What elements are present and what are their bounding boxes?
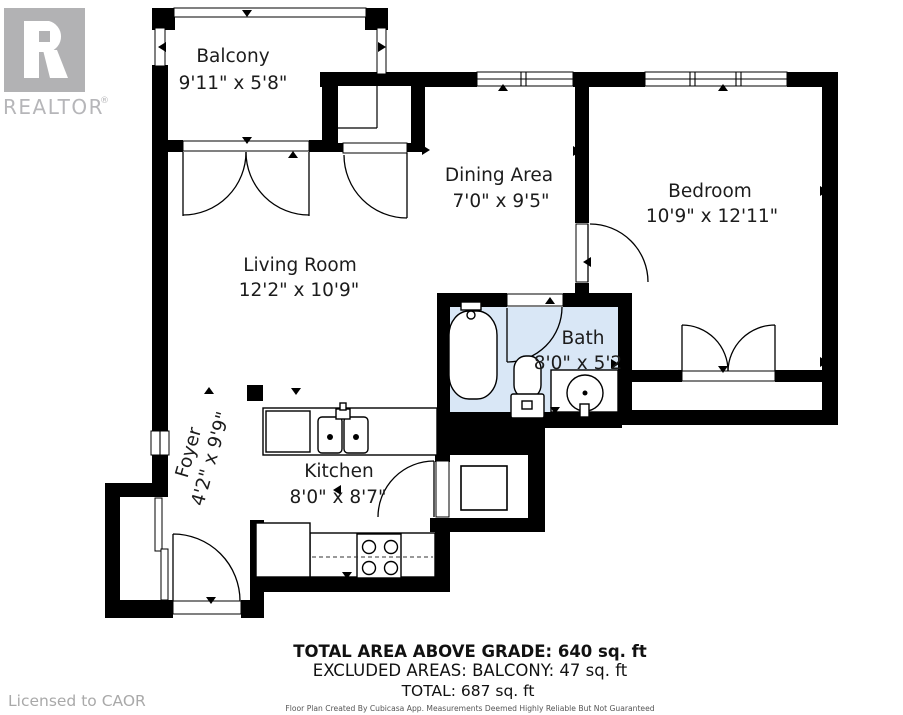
- registered-mark: ®: [100, 96, 109, 106]
- bedroom-window: [645, 72, 787, 86]
- dining-window: [477, 72, 573, 86]
- excluded-areas: EXCLUDED AREAS: BALCONY: 47 sq. ft: [313, 661, 628, 680]
- area-summary: TOTAL AREA ABOVE GRADE: 640 sq. ft EXCLU…: [285, 642, 654, 713]
- living-dims: 12'2" x 10'9": [239, 280, 360, 301]
- bathroom-sink: [551, 370, 618, 417]
- fridge: [256, 523, 310, 577]
- floorplan-svg: REALTOR ®: [0, 0, 903, 715]
- kitchen-counter-bottom: [256, 523, 435, 578]
- stove: [357, 534, 401, 578]
- floorplan-page: REALTOR ®: [0, 0, 903, 715]
- bedroom-closet-door-right: [728, 325, 775, 371]
- licensed-text: Licensed to CAOR: [8, 692, 146, 710]
- kitchen-name: Kitchen: [304, 461, 374, 482]
- balcony-french-door-right: [246, 152, 309, 216]
- balcony-railing: [155, 8, 386, 74]
- total-above-grade: TOTAL AREA ABOVE GRADE: 640 sq. ft: [293, 642, 647, 661]
- bathtub: [449, 302, 497, 399]
- utility-closet: [338, 86, 411, 143]
- foyer-sliding-doors: [155, 498, 168, 600]
- balcony-french-door-left: [183, 152, 246, 216]
- balcony-dims: 9'11" x 5'8": [179, 73, 288, 94]
- room-label-foyer: Foyer 4'2" x 9'9": [166, 403, 235, 508]
- bath-dims: 8'0" x 5'2: [534, 353, 622, 374]
- utility-closet-door: [344, 153, 407, 218]
- living-name: Living Room: [243, 255, 357, 276]
- room-label-dining: Dining Area 7'0" x 9'5": [445, 165, 553, 212]
- bedroom-name: Bedroom: [668, 181, 752, 202]
- room-label-balcony: Balcony 9'11" x 5'8": [179, 46, 288, 94]
- entry-door: [173, 534, 240, 601]
- dining-name: Dining Area: [445, 165, 553, 186]
- room-label-living: Living Room 12'2" x 10'9": [239, 255, 360, 301]
- dining-dims: 7'0" x 9'5": [453, 191, 550, 212]
- room-label-kitchen: Kitchen 8'0" x 8'7": [290, 461, 387, 508]
- realtor-wordmark: REALTOR: [3, 95, 104, 119]
- bath-name: Bath: [561, 328, 604, 349]
- foyer-window: [151, 431, 169, 455]
- kitchen-counter-top: [263, 403, 437, 455]
- balcony-name: Balcony: [196, 46, 269, 67]
- dishwasher: [266, 411, 310, 452]
- pantry-unit: [461, 466, 507, 510]
- total-area: TOTAL: 687 sq. ft: [401, 682, 535, 700]
- kitchen-dims: 8'0" x 8'7": [290, 487, 387, 508]
- room-label-bedroom: Bedroom 10'9" x 12'11": [646, 181, 778, 227]
- disclaimer: Floor Plan Created By Cubicasa App. Meas…: [285, 704, 654, 713]
- realtor-logo: REALTOR ®: [3, 8, 109, 119]
- bedroom-closet-door-left: [682, 325, 728, 371]
- bedroom-dims: 10'9" x 12'11": [646, 206, 778, 227]
- bedroom-door: [588, 224, 648, 282]
